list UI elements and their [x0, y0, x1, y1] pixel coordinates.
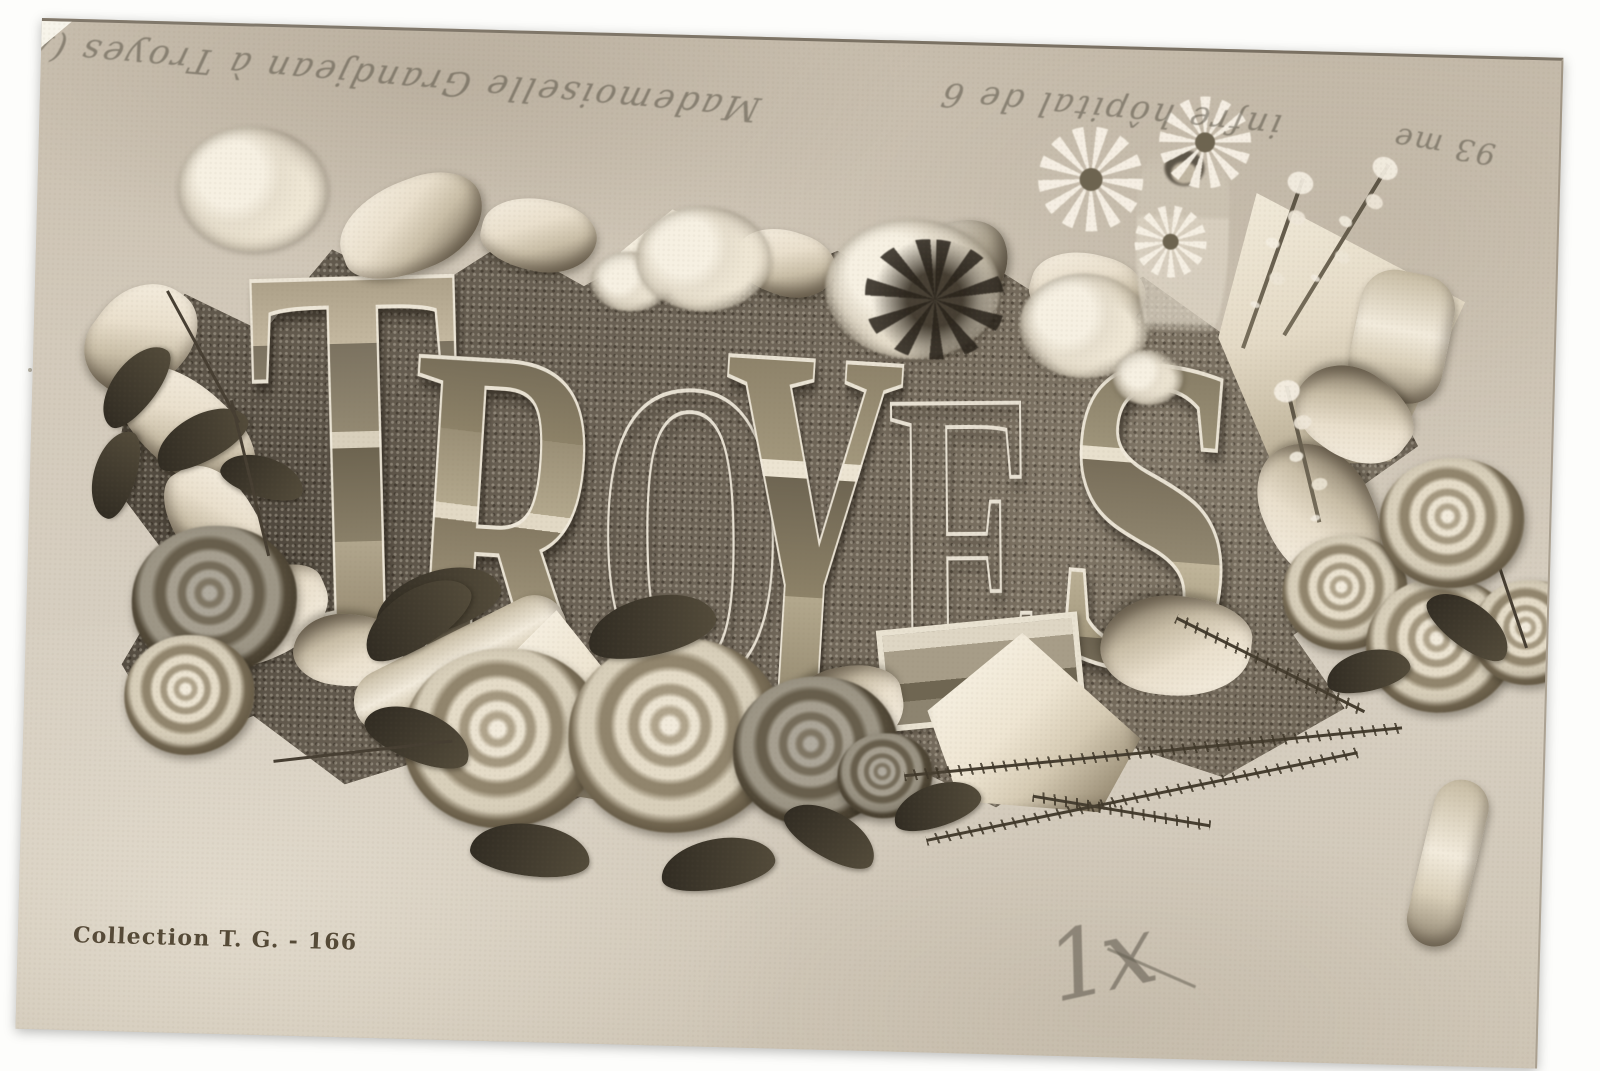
- publisher-caption: Collection T. G. - 166: [72, 922, 357, 955]
- daisy-flower: [1037, 125, 1145, 233]
- postcard: T R O Y E S: [16, 18, 1564, 1068]
- handwriting-address: Mademoiselle Grandjean à Troyes (Aube): [116, 34, 764, 129]
- dust-speck: [28, 368, 32, 372]
- pencil-mark: 1x: [1037, 895, 1160, 1024]
- paper-curl: [1401, 774, 1494, 952]
- scanned-postcard-photo: T R O Y E S: [0, 0, 1600, 1071]
- rose-flower: [1378, 456, 1526, 590]
- rose-flower: [123, 633, 256, 756]
